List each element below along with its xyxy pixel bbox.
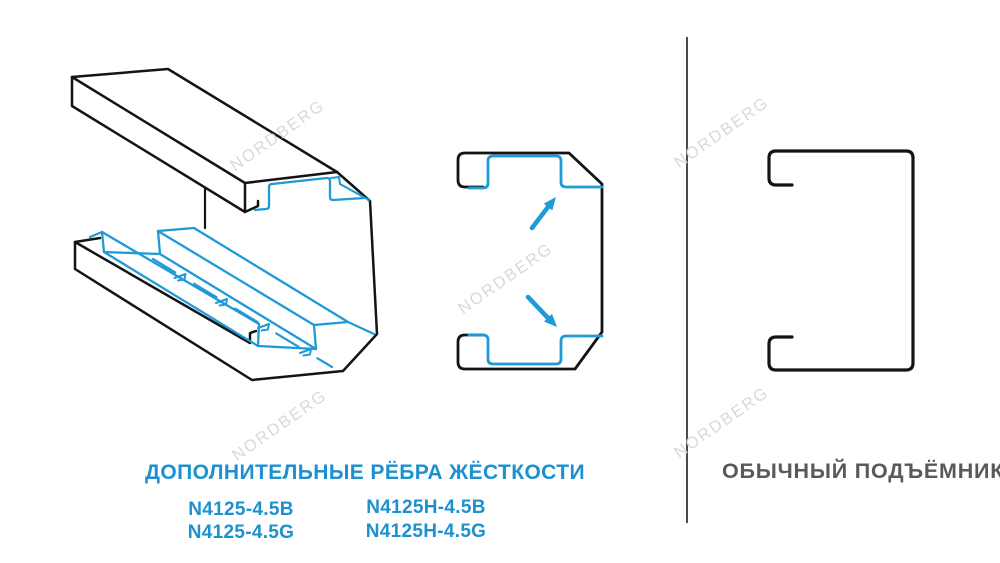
model-number: N4125H-4.5G: [366, 521, 487, 543]
plain-profile-cross-section: [769, 151, 913, 370]
left-section-title: ДОПОЛНИТЕЛЬНЫЕ РЁБРА ЖЁСТКОСТИ: [145, 461, 545, 485]
channel-outline: [72, 69, 377, 380]
model-number: N4125H-4.5B: [366, 497, 485, 519]
top-stiffening-rib: [255, 177, 369, 210]
bottom-stiffening-rib: [90, 228, 374, 367]
arrow-up-icon: [532, 197, 556, 228]
arrow-down-icon: [528, 297, 557, 327]
upper-rib-line: [469, 156, 602, 188]
plain-section-outline: [769, 151, 913, 370]
right-section-title: ОБЫЧНЫЙ ПОДЪЁМНИК: [722, 459, 965, 484]
model-number: N4125-4.5B: [188, 499, 293, 521]
lift-profile-comparison-diagram: NORDBERG NORDBERG NORDBERG NORDBERG NORD…: [0, 0, 1000, 563]
model-number: N4125-4.5G: [188, 522, 295, 544]
isometric-profile-drawing: [72, 69, 377, 380]
